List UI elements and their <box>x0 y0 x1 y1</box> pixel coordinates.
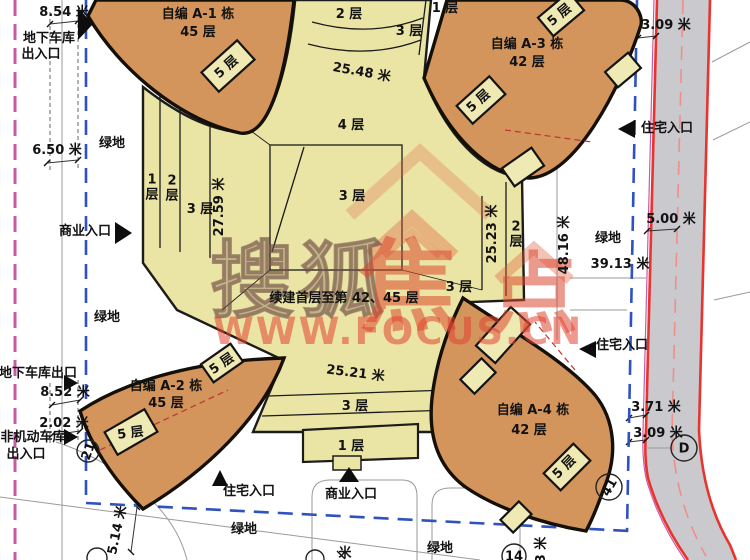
dim-6-50: 6.50 米 <box>32 142 83 158</box>
dim-25-23: 25.23 米 <box>484 204 500 264</box>
green-area-3: 绿地 <box>595 230 621 246</box>
dim-partial-right: 3 米 <box>533 536 549 560</box>
dim-3-71: 3.71 米 <box>631 399 682 415</box>
tower-a2-name: 自编 A-2 栋 <box>130 378 203 394</box>
band-1f-top: 1 层 <box>432 1 459 16</box>
band-3f-left: 3 层 <box>187 202 214 217</box>
entrance-res-3: 住宅入口 <box>223 483 275 499</box>
green-area-1: 绿地 <box>99 135 125 151</box>
tower-a2-floors: 45 层 <box>148 396 184 411</box>
dim-2-02: 2.02 米 <box>39 415 90 431</box>
band-4f: 4 层 <box>338 118 365 133</box>
dim-partial-center: 米 <box>338 545 352 560</box>
entrance-res-2: 住宅入口 <box>596 337 648 353</box>
band-2f-top: 2 层 <box>336 7 363 22</box>
entrance-garage-inout-1: 地下车库 <box>23 30 75 46</box>
dim-27-59: 27.59 米 <box>211 177 227 237</box>
site-plan-canvas: 搜狐 焦 点 WWW.FOCUS.CN D412114 8.54 米地下车库出入… <box>0 0 750 560</box>
tower-a3-floors: 42 层 <box>509 55 545 70</box>
green-area-2: 绿地 <box>94 309 120 325</box>
band-3f-top: 3 层 <box>396 24 423 39</box>
axis-bubble-21: 21 <box>77 440 99 462</box>
tower-a1-floors: 45 层 <box>180 25 216 40</box>
entrance-garage-inout-2: 出入口 <box>21 46 60 62</box>
axis-bubble-d-label: D <box>679 442 690 457</box>
entrance-res-1: 住宅入口 <box>641 120 693 136</box>
green-area-4: 绿地 <box>231 521 257 537</box>
core-3f: 3 层 <box>339 189 366 204</box>
entrance-nonmotor-2: 出入口 <box>6 446 45 462</box>
tower-a3-name: 自编 A-3 栋 <box>491 36 564 52</box>
dim-48-16: 48.16 米 <box>556 215 572 275</box>
tower-a1-name: 自编 A-1 栋 <box>162 6 235 22</box>
entrance-nonmotor-1: 非机动车库 <box>0 429 65 445</box>
band-1f-bottom: 1 层 <box>338 439 365 454</box>
band-3f-right: 3 层 <box>446 280 473 295</box>
tower-a4-name: 自编 A-4 栋 <box>497 402 570 418</box>
green-area-5: 绿地 <box>427 540 453 556</box>
watermark-url: WWW.FOCUS.CN <box>213 310 583 353</box>
entrance-canopy <box>333 456 361 470</box>
entrance-comm-2: 商业入口 <box>325 486 377 502</box>
dim-3-09-top: 3.09 米 <box>641 17 692 33</box>
entrance-comm-1: 商业入口 <box>59 223 111 239</box>
dim-3-09-bottom: 3.09 米 <box>633 425 684 441</box>
tower-a4-floors: 42 层 <box>511 423 547 438</box>
note-construction: 续建首层至第 42、45 层 <box>269 290 418 306</box>
entrance-garage-out: 地下车库出口 <box>0 365 77 381</box>
axis-bubble-14-label: 14 <box>505 550 523 560</box>
dim-8-54: 8.54 米 <box>39 4 90 20</box>
dim-8-52: 8.52 米 <box>40 384 91 400</box>
dim-39-13: 39.13 米 <box>591 256 651 272</box>
site-plan-stage: 搜狐 焦 点 WWW.FOCUS.CN D412114 8.54 米地下车库出入… <box>0 0 750 560</box>
dim-5-00: 5.00 米 <box>646 211 697 227</box>
band-3f-bottom: 3 层 <box>342 399 369 414</box>
